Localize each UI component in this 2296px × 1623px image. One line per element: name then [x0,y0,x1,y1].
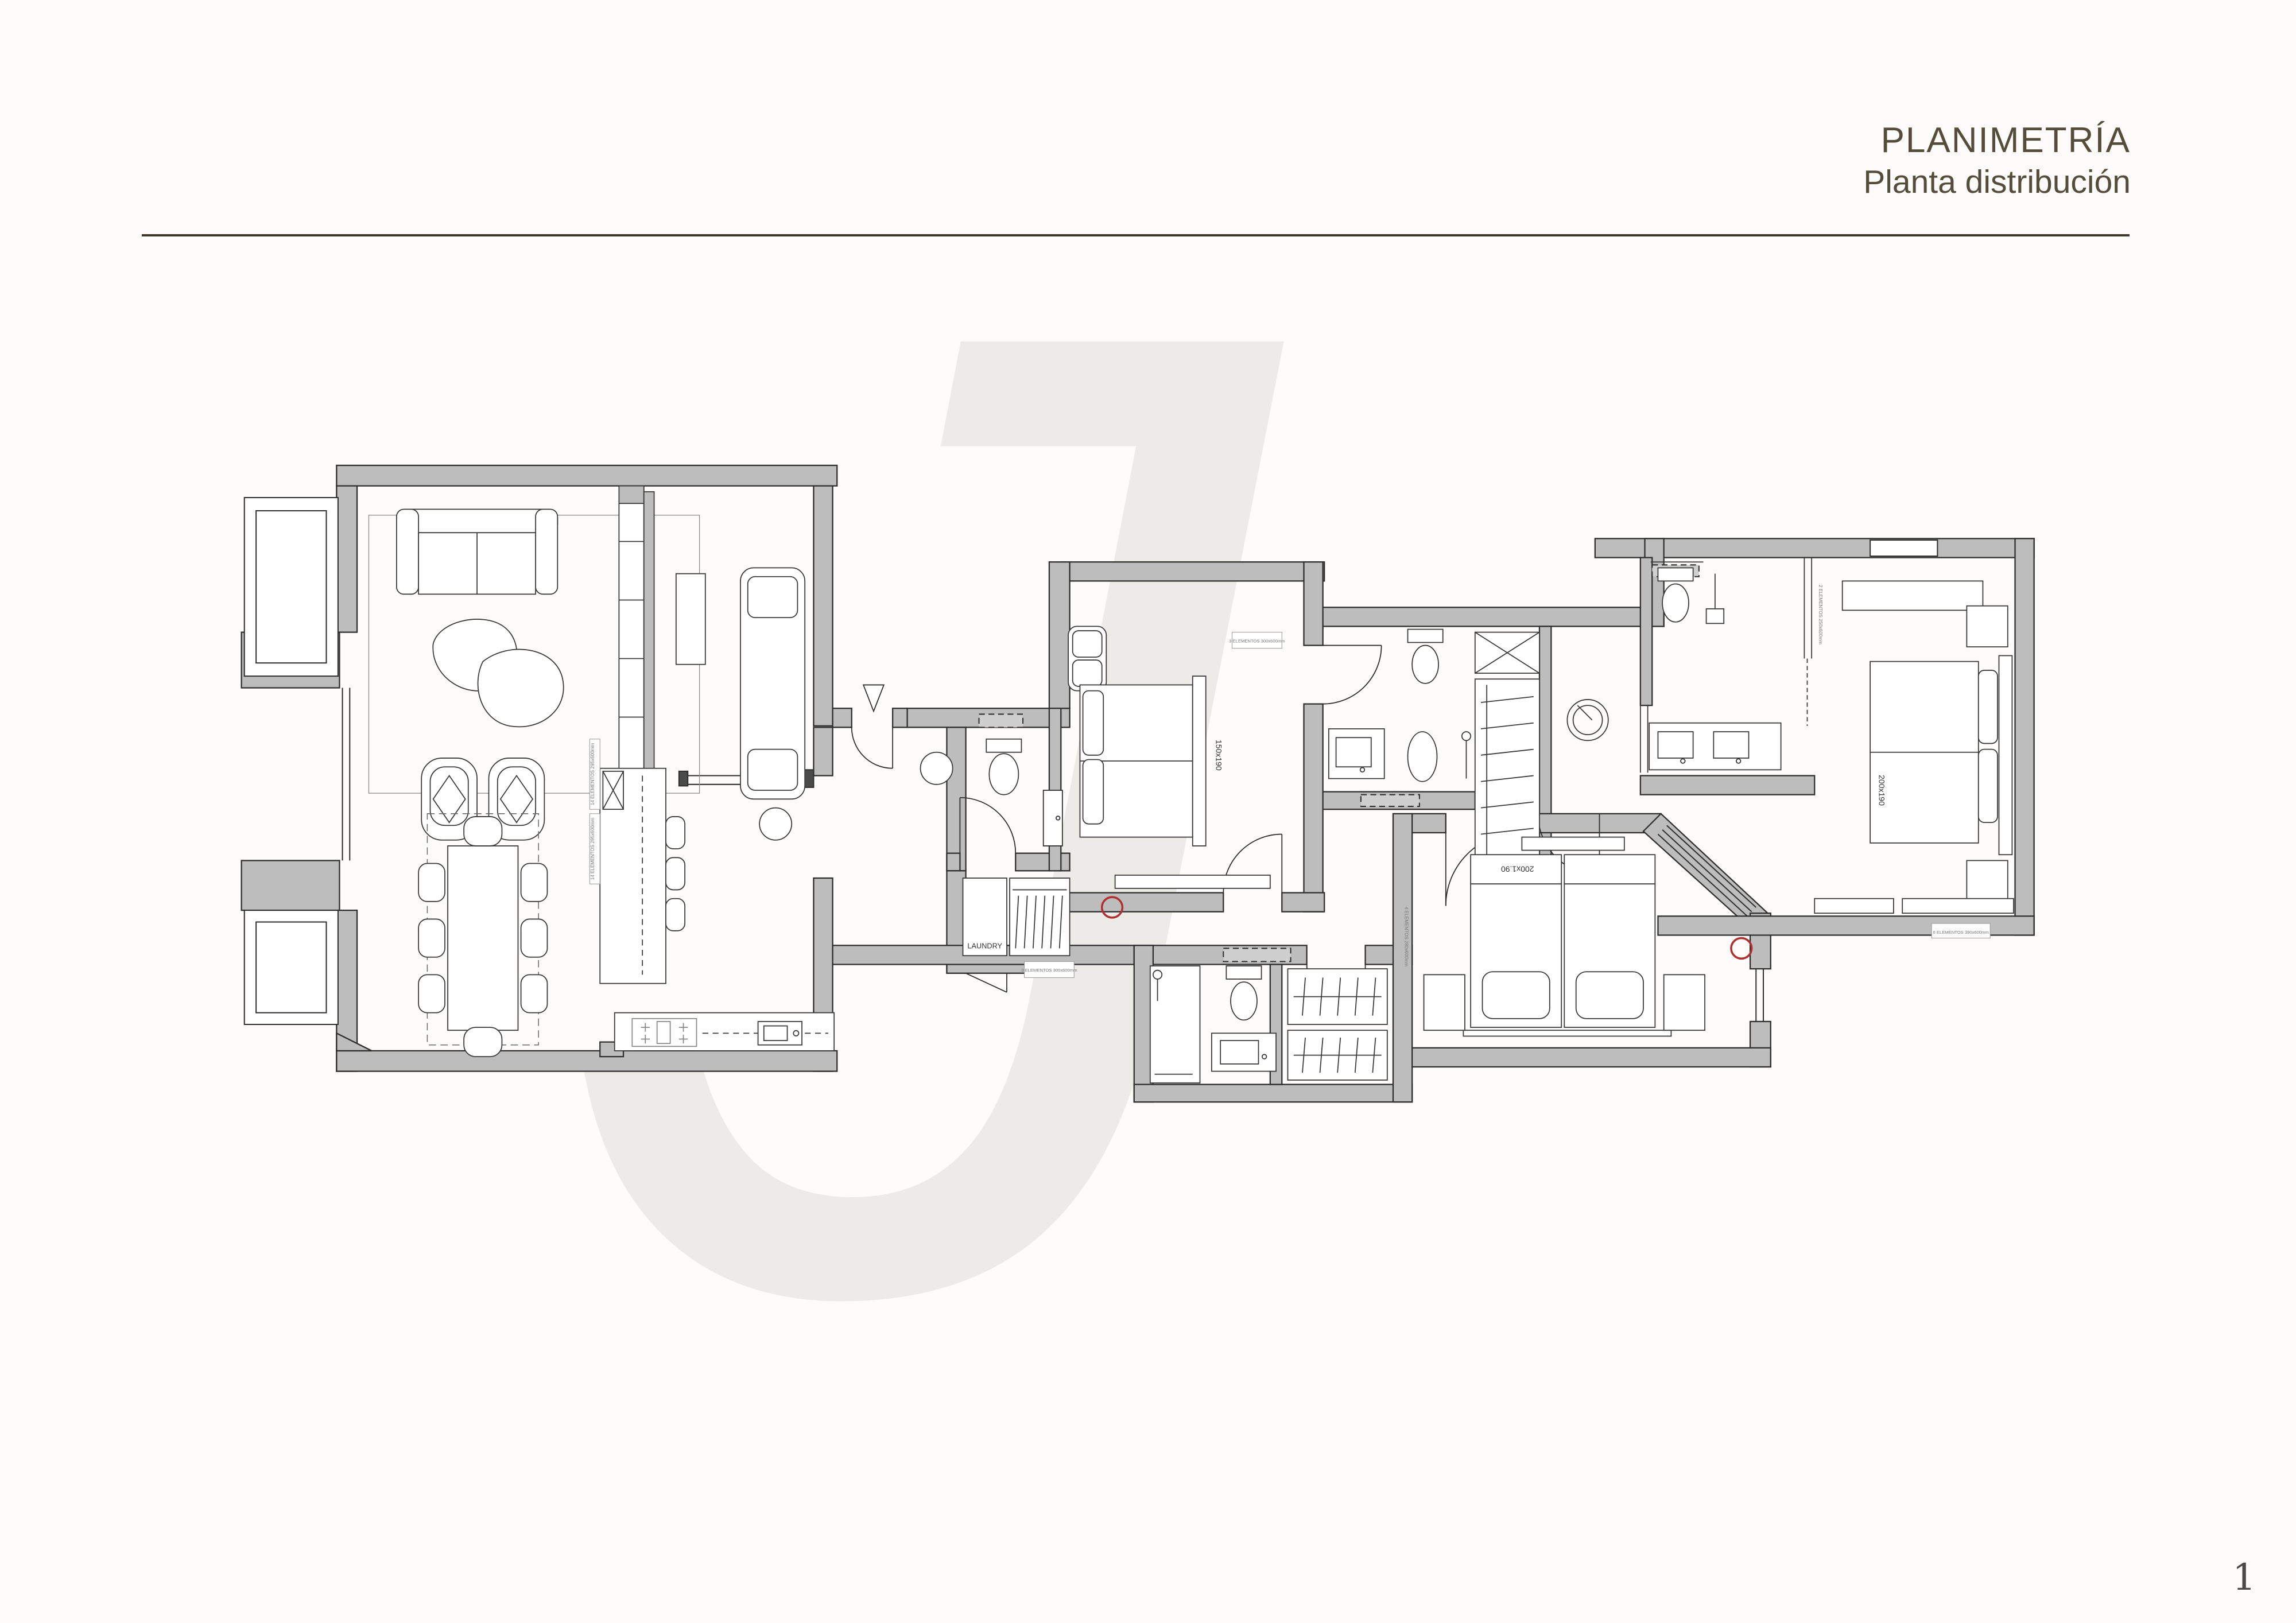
cooktop [632,1019,696,1046]
master-bedroom: 200x190 [1814,581,2014,913]
revision-marker [1731,938,1752,959]
washer-nook [1567,700,1647,773]
dresser [1115,875,1270,888]
kitchen-sink [758,1022,802,1045]
double-vanity [1649,723,1781,770]
svg-text:2 ELEMENTOS 250x600mm: 2 ELEMENTOS 250x600mm [1818,585,1823,644]
master-ensuite [1649,558,1812,770]
side-table [759,808,792,840]
vanity [1329,729,1384,779]
wc-toilet [986,739,1021,795]
bed-size-label: 200x1.90 [1501,865,1534,874]
wardrobe [1522,837,1624,851]
nightstand [1967,606,2007,647]
bench [1068,626,1106,690]
dining-area [418,814,547,1057]
bed [1080,676,1205,846]
svg-text:14 ELEMENTOS 295x600mm: 14 ELEMENTOS 295x600mm [590,818,595,880]
dining-table [448,846,518,1030]
twin-beds [1463,855,1671,1036]
title-block: PLANIMETRÍA Planta distribución [1863,119,2131,203]
coffee-table [478,649,564,727]
svg-text:3 ELEMENTOS 300x600mm: 3 ELEMENTOS 300x600mm [1021,968,1077,973]
page-title: PLANIMETRÍA [1863,119,2131,162]
laundry-label: LAUNDRY [967,941,1002,950]
nightstand [1664,974,1705,1030]
hall-closets [1287,969,1387,1080]
floor-plan: J [0,0,2296,1623]
desk [1843,581,1983,610]
svg-text:3 ELEMENTOS 300x600mm: 3 ELEMENTOS 300x600mm [1229,638,1285,643]
shower-tray [1408,732,1437,782]
plan-sheet: J [0,0,2296,1623]
page-subtitle: Planta distribución [1863,162,2131,203]
shower-fixture [1462,732,1471,779]
bathroom-2 [1329,630,1471,782]
svg-text:14 ELEMENTOS 295x600mm: 14 ELEMENTOS 295x600mm [590,743,595,806]
sofa [397,509,557,594]
console-table [676,574,705,665]
kitchen-counter [615,1013,834,1051]
twin-bedroom: 200x1.90 [1424,837,1705,1036]
shower-fixture [1707,574,1724,624]
wc-basin [921,752,953,785]
svg-text:4 ELEMENTOS 280x600mm: 4 ELEMENTOS 280x600mm [1403,907,1409,966]
header-rule [142,234,2130,236]
toilet [1408,630,1443,684]
bed-size-label: 200x190 [1877,775,1886,806]
bed [1870,655,2012,855]
wardrobe [1814,899,1894,914]
nightstand [1424,974,1465,1030]
wardrobe [1902,899,2014,914]
bed-size-label: 150x190 [1215,740,1224,771]
nightstand [1967,860,2007,901]
vanity [1212,1033,1276,1071]
laundry-closet: LAUNDRY [963,878,1070,956]
svg-text:6 ELEMENTOS 390x600mm: 6 ELEMENTOS 390x600mm [1933,930,1989,935]
daybed [740,568,805,799]
page-number: 1 [2232,1556,2256,1599]
